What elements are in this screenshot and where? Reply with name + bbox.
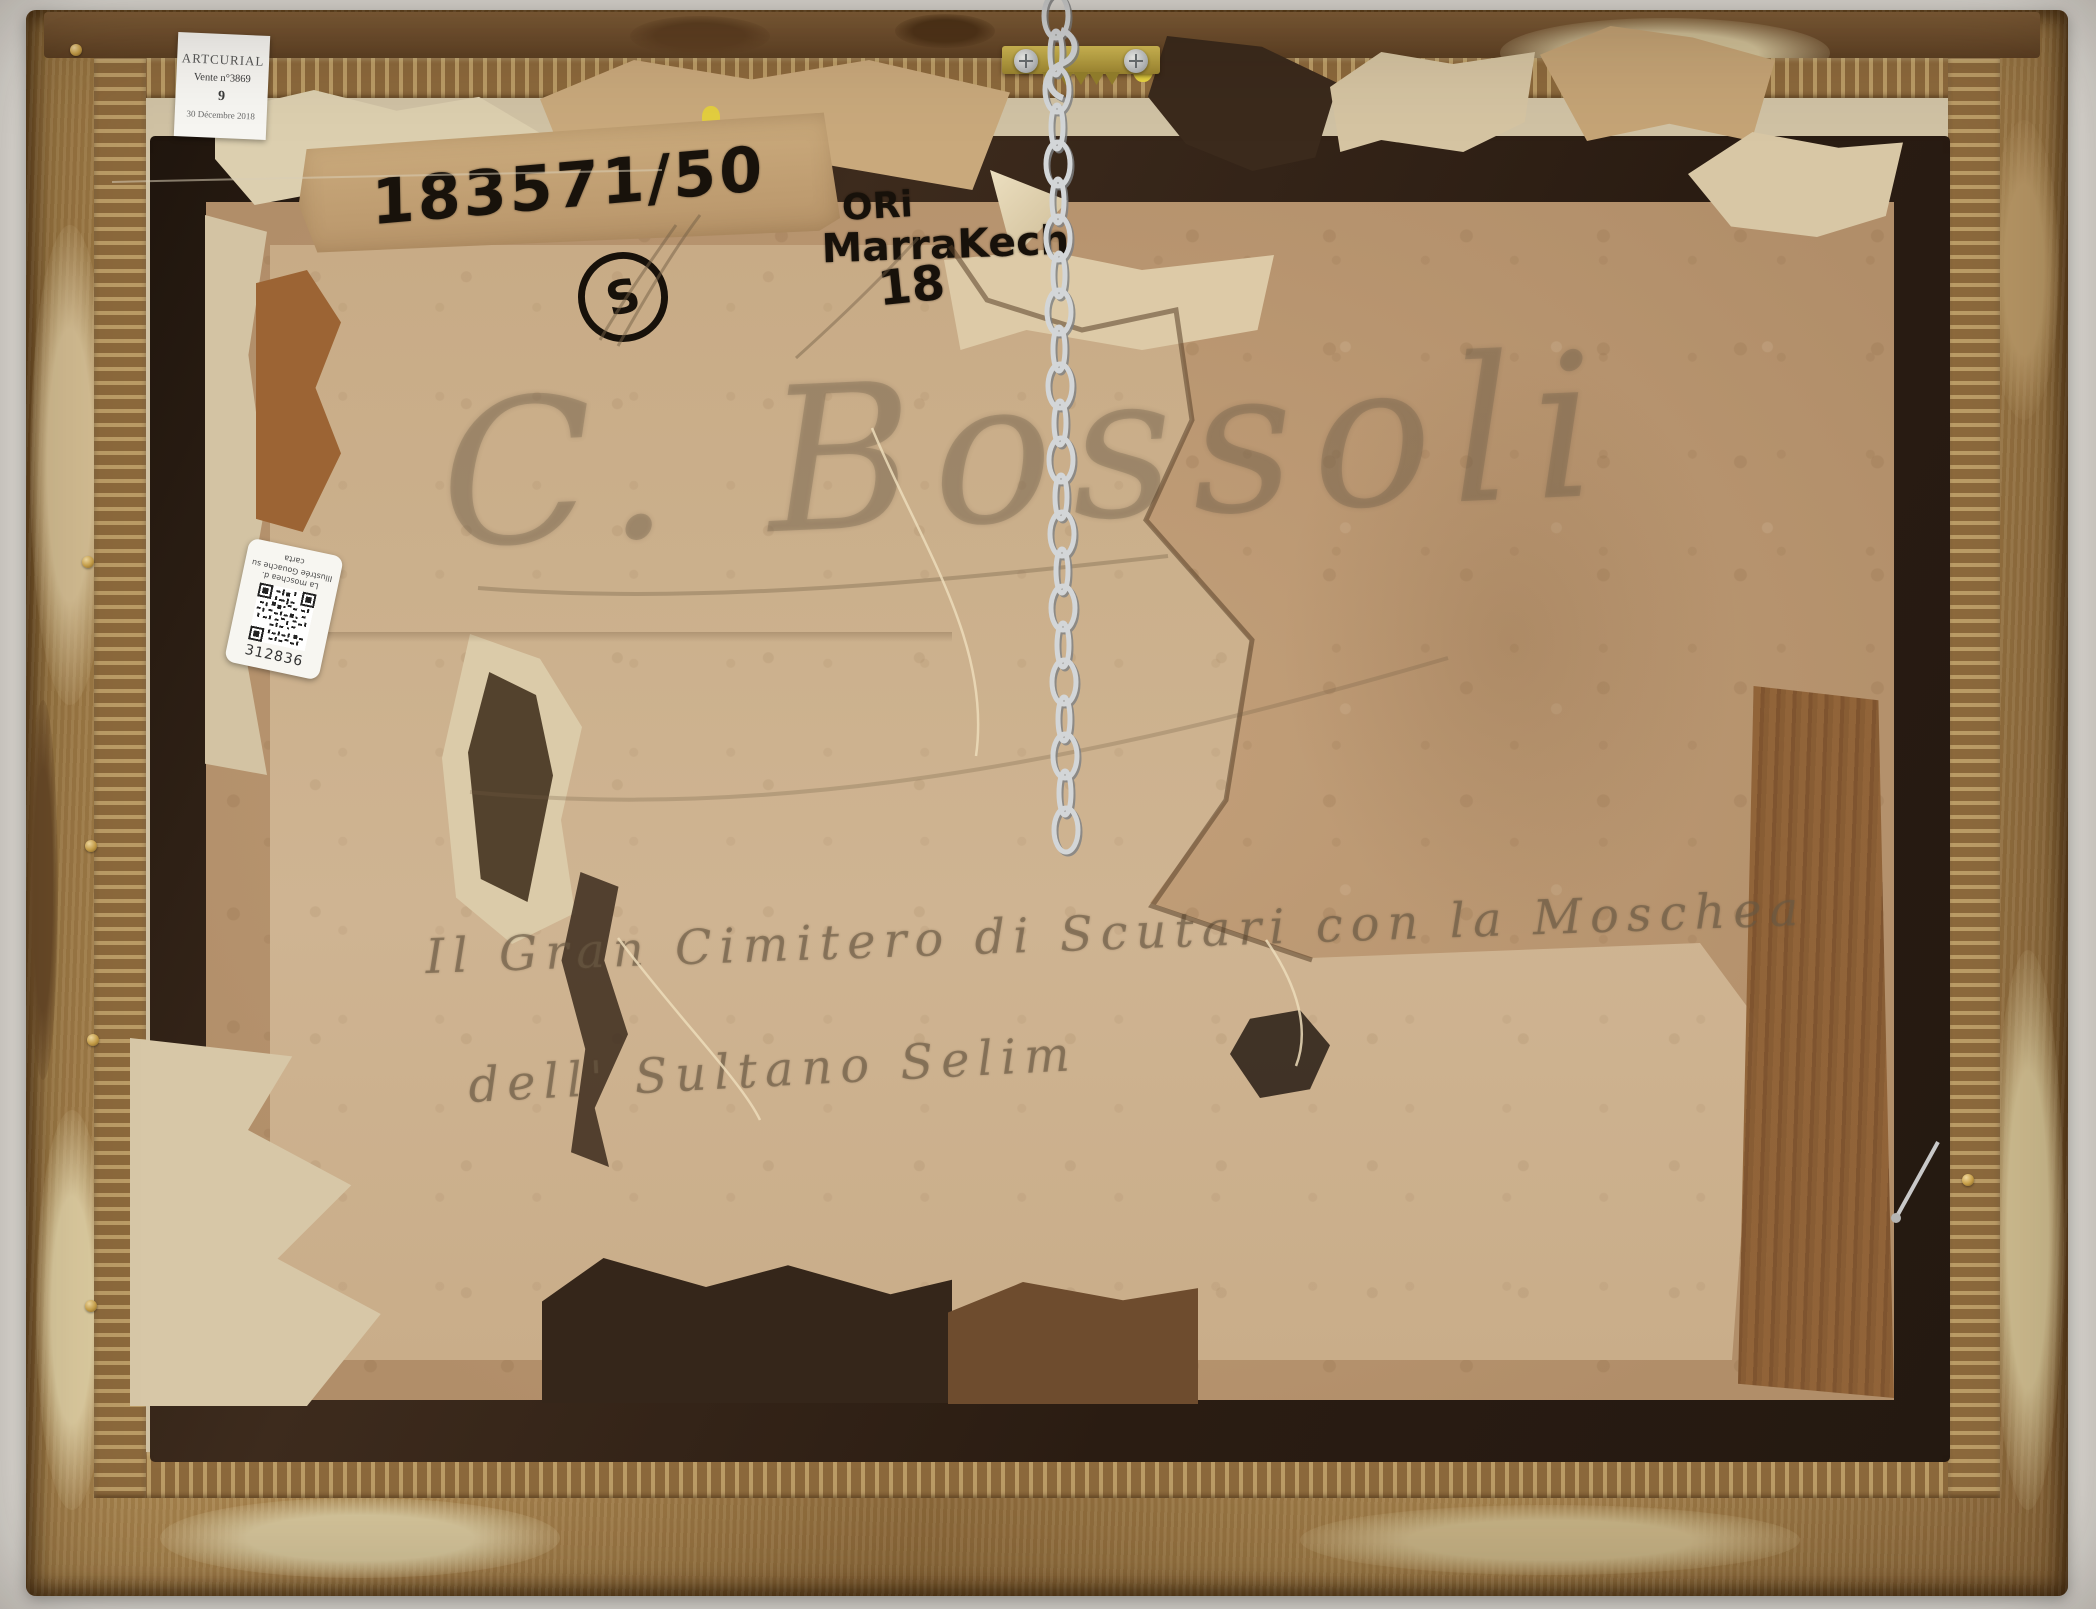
- circled-letter: S: [600, 267, 645, 327]
- wear-patch: [160, 1498, 560, 1578]
- crease-line: [272, 632, 952, 642]
- wear-patch: [1300, 1505, 1800, 1575]
- brass-tack-icon: [70, 44, 82, 56]
- wear-patch: [28, 700, 58, 1080]
- brass-tack-icon: [87, 1034, 99, 1046]
- wood-slat: [1738, 686, 1894, 1398]
- marker-line3: 18: [875, 255, 947, 318]
- brass-tack-icon: [85, 1300, 97, 1312]
- auction-label: ARTCURIAL Vente n°3869 9 30 Décembre 201…: [174, 32, 270, 140]
- auction-house-name: ARTCURIAL: [182, 50, 265, 70]
- marker-line2: MarraKech: [821, 218, 1070, 273]
- gilt-moulding-right: [1948, 58, 2000, 1498]
- auction-lot-number: 9: [218, 89, 226, 105]
- screw-icon: [1014, 49, 1038, 73]
- brass-tack-icon: [1962, 1174, 1974, 1186]
- auction-date: 30 Décembre 2018: [186, 108, 255, 121]
- marker-line1: ORi: [841, 184, 914, 229]
- auction-sale-number: Vente n°3869: [194, 72, 251, 85]
- wear-patch: [895, 14, 995, 48]
- wear-patch: [630, 16, 770, 56]
- qr-code-icon: [248, 582, 317, 651]
- screw-icon: [1124, 49, 1148, 73]
- wear-patch: [1992, 950, 2064, 1510]
- brass-tack-icon: [82, 556, 94, 568]
- brass-tack-icon: [85, 840, 97, 852]
- stain-patch: [948, 1282, 1198, 1404]
- photo-backdrop: C. Bossoli Il Gran Cimitero di Scutari c…: [0, 0, 2096, 1609]
- tape-number: 183571/50: [371, 131, 766, 239]
